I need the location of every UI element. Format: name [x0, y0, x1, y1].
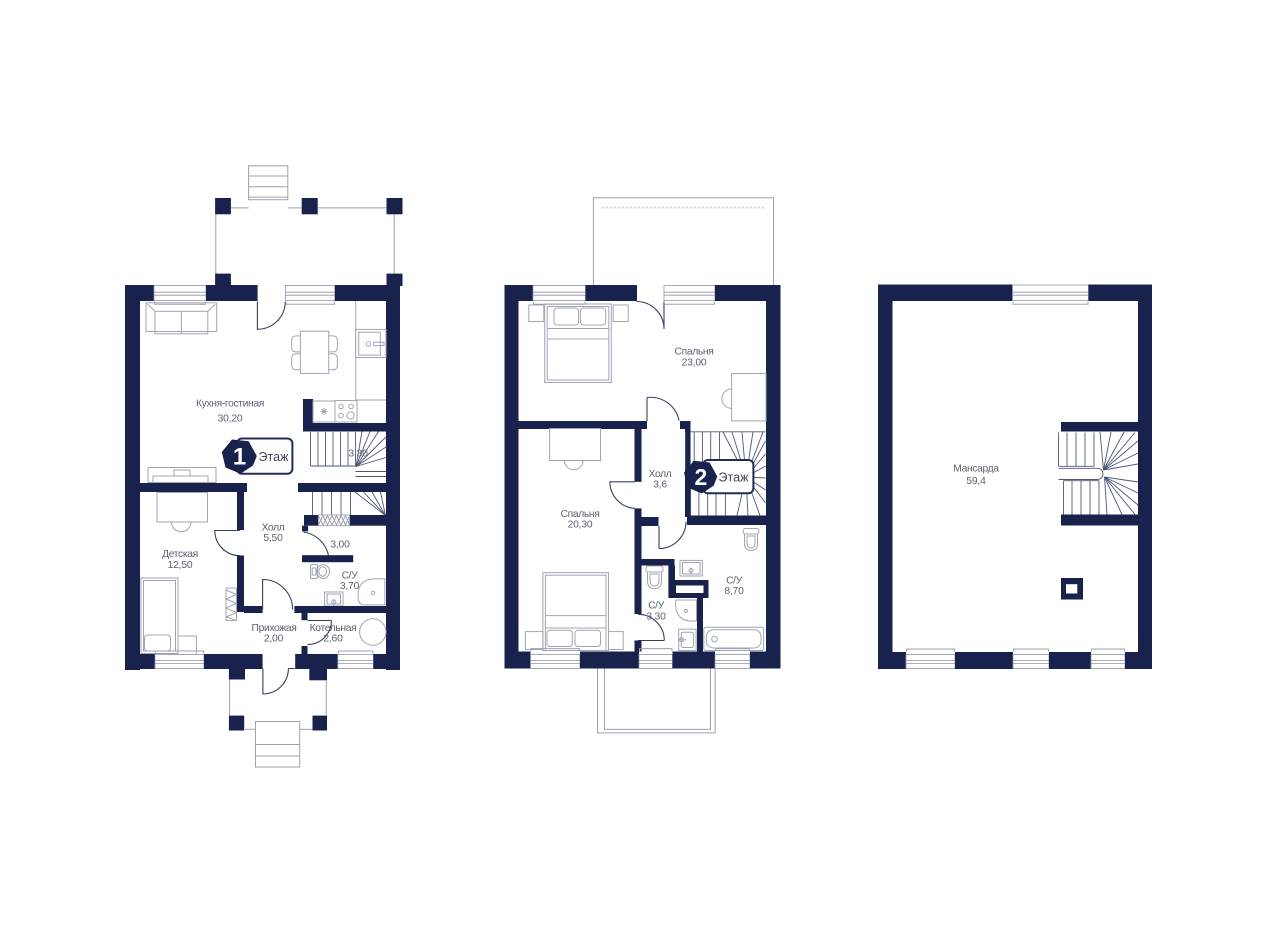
svg-text:8,70: 8,70	[724, 586, 744, 597]
svg-text:30,20: 30,20	[218, 414, 243, 425]
svg-text:2: 2	[695, 464, 708, 490]
svg-text:Прихожая: Прихожая	[252, 623, 297, 634]
svg-text:Мансарда: Мансарда	[953, 464, 999, 475]
svg-text:Этаж: Этаж	[719, 471, 750, 485]
svg-text:С/У: С/У	[726, 576, 743, 587]
svg-text:Котельная: Котельная	[310, 623, 357, 634]
svg-text:3,6: 3,6	[653, 480, 667, 491]
svg-text:Детская: Детская	[162, 549, 198, 560]
svg-text:Кухня-гостиная: Кухня-гостиная	[196, 399, 264, 410]
svg-text:Спальня: Спальня	[675, 347, 714, 358]
svg-text:20,30: 20,30	[568, 520, 593, 531]
svg-text:2,60: 2,60	[323, 634, 343, 645]
svg-text:3,30: 3,30	[348, 449, 368, 460]
svg-text:5,50: 5,50	[263, 533, 283, 544]
svg-text:59,4: 59,4	[966, 476, 986, 487]
svg-text:1: 1	[233, 444, 246, 471]
svg-text:12,50: 12,50	[168, 560, 193, 571]
svg-text:3,70: 3,70	[340, 581, 360, 592]
svg-text:3,30: 3,30	[646, 612, 666, 623]
svg-text:2,00: 2,00	[264, 634, 284, 645]
svg-text:С/У: С/У	[342, 571, 359, 582]
svg-text:Спальня: Спальня	[561, 509, 600, 520]
svg-text:3,00: 3,00	[330, 540, 350, 551]
svg-text:Холл: Холл	[262, 523, 285, 534]
svg-text:Этаж: Этаж	[259, 450, 290, 464]
svg-text:23,00: 23,00	[682, 358, 707, 369]
svg-text:С/У: С/У	[648, 601, 665, 612]
svg-text:Холл: Холл	[649, 469, 672, 480]
